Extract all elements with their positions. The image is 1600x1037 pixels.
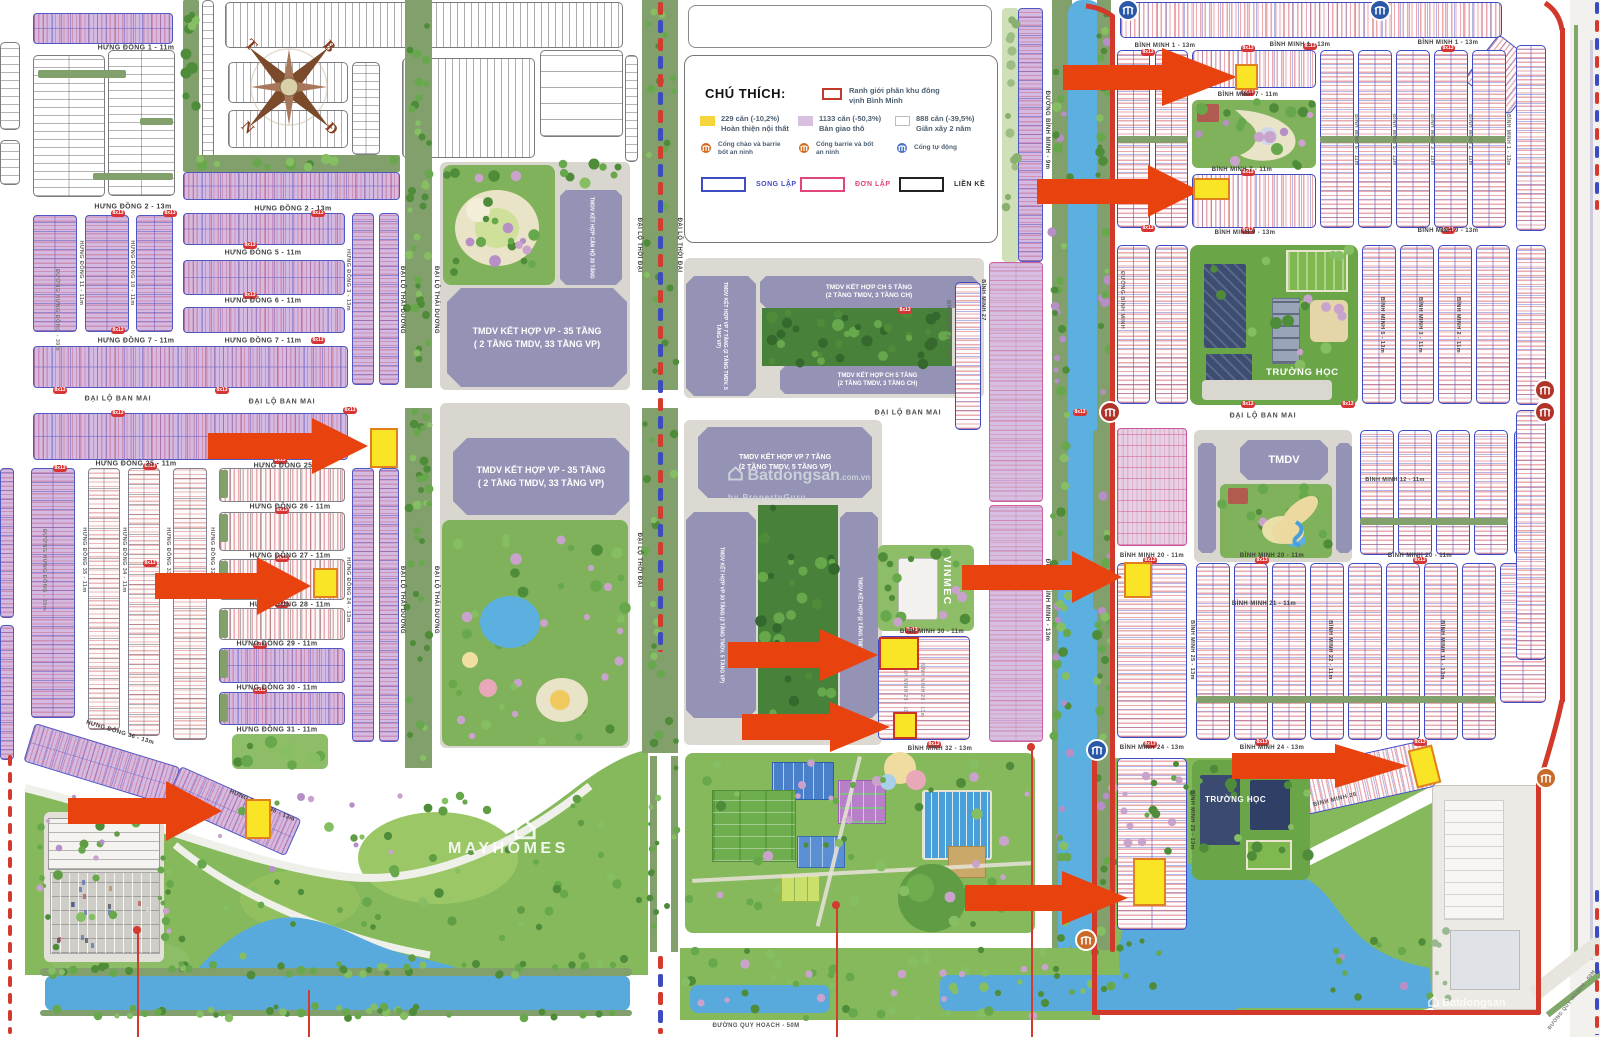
svg-text:T: T bbox=[241, 36, 259, 54]
